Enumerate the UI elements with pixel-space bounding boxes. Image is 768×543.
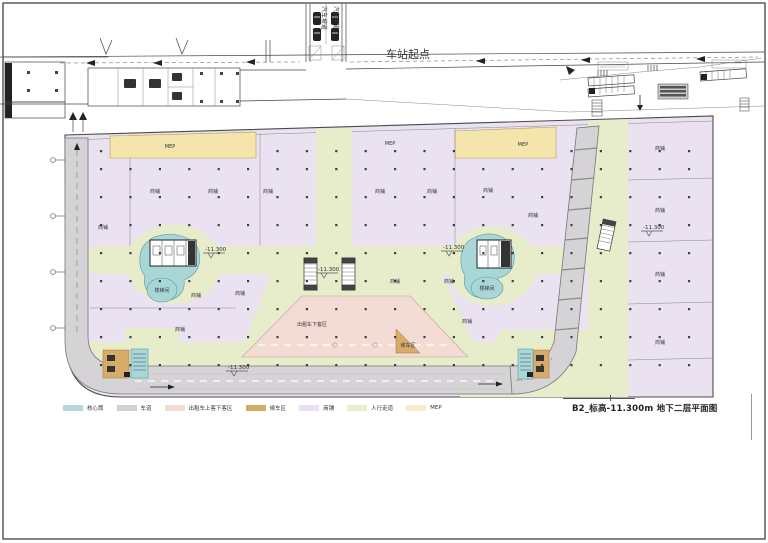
column-dot — [159, 280, 161, 282]
legend-swatch — [117, 405, 137, 411]
shop-label: 商铺 — [444, 278, 454, 285]
column-dot — [247, 308, 249, 310]
column-dot — [423, 224, 425, 226]
legend-item: 车道 — [117, 404, 152, 412]
column-dot — [247, 280, 249, 282]
column-dot — [247, 224, 249, 226]
column-dot — [365, 150, 367, 152]
station-escalator-cluster — [560, 58, 762, 116]
car-ramp: 汽车坡道 汽车坡道 — [306, 4, 346, 62]
column-dot — [600, 336, 602, 338]
column-dot — [335, 196, 337, 198]
mep-label: MEP — [518, 142, 529, 148]
column-dot — [629, 280, 631, 282]
column-dot — [512, 308, 514, 310]
column-dot — [365, 280, 367, 282]
column-dot — [629, 168, 631, 170]
column-dot — [276, 168, 278, 170]
column-dot — [335, 252, 337, 254]
escalator-icon — [588, 75, 634, 97]
column-dot — [276, 364, 278, 366]
column-dot — [570, 168, 572, 170]
column-dot — [394, 196, 396, 198]
column-dot — [453, 252, 455, 254]
column-dot — [570, 280, 572, 282]
column-dot — [659, 168, 661, 170]
column-dot — [453, 336, 455, 338]
column-dot — [482, 196, 484, 198]
column-dot — [453, 308, 455, 310]
column-dot — [570, 364, 572, 366]
column-dot — [306, 196, 308, 198]
column-dot — [306, 364, 308, 366]
column-dot — [365, 336, 367, 338]
column-dot — [629, 150, 631, 152]
column-dot — [159, 196, 161, 198]
column-dot — [512, 364, 514, 366]
column-dot — [129, 364, 131, 366]
legend-swatch — [299, 405, 319, 411]
column-dot — [188, 168, 190, 170]
column-dot — [512, 196, 514, 198]
station-start-label: 车站起点 — [386, 47, 430, 61]
column-dot — [541, 336, 543, 338]
column-dot — [600, 150, 602, 152]
column-dot — [365, 224, 367, 226]
column-dot — [335, 168, 337, 170]
column-dot — [159, 336, 161, 338]
column-dot — [188, 308, 190, 310]
shop-label: 商铺 — [175, 326, 185, 333]
shop-label: 商铺 — [427, 188, 437, 195]
column-dot — [482, 336, 484, 338]
column-dot — [659, 364, 661, 366]
title-rule — [563, 398, 635, 399]
break-line — [100, 38, 112, 54]
column-dot — [129, 196, 131, 198]
column-dot — [129, 280, 131, 282]
shop-label: 商铺 — [150, 188, 160, 195]
legend-item: 出租车上客下客区 — [165, 404, 233, 412]
column-dot — [306, 168, 308, 170]
shop-label: 商铺 — [655, 145, 665, 152]
legend: 核心筒车道出租车上客下客区候车区商铺人行走道MEP — [63, 404, 442, 412]
column-dot — [129, 252, 131, 254]
column-dot — [600, 224, 602, 226]
column-dot — [159, 252, 161, 254]
legend-item: 人行走道 — [347, 404, 393, 412]
shop-label: 商铺 — [191, 292, 201, 299]
column-dot — [218, 336, 220, 338]
column-dot — [423, 336, 425, 338]
column-dot — [247, 168, 249, 170]
column-dot — [629, 224, 631, 226]
legend-item: 候车区 — [246, 404, 287, 412]
column-dot — [188, 252, 190, 254]
column-dot — [688, 150, 690, 152]
column-dot — [394, 252, 396, 254]
column-dot — [335, 224, 337, 226]
column-dot — [218, 308, 220, 310]
column-dot — [188, 196, 190, 198]
legend-swatch — [347, 405, 367, 411]
stair-block — [518, 349, 533, 379]
svg-text:-11.300: -11.300 — [318, 267, 340, 273]
column-dot — [659, 280, 661, 282]
drawing-title: B2_标高-11.300m 地下二层平面图 — [572, 402, 718, 414]
column-dot — [100, 168, 102, 170]
column-dot — [570, 252, 572, 254]
column-dot — [688, 364, 690, 366]
shop-label: 商铺 — [390, 278, 400, 285]
column-dot — [629, 336, 631, 338]
column-dot — [600, 364, 602, 366]
ramp-label: 汽车坡道 — [320, 6, 328, 30]
column-dot — [423, 168, 425, 170]
column-dot — [629, 308, 631, 310]
legend-label: 出租车上客下客区 — [189, 404, 233, 412]
column-dot — [600, 280, 602, 282]
column-dot — [688, 224, 690, 226]
column-dot — [453, 224, 455, 226]
column-dot — [159, 364, 161, 366]
column-dot — [100, 150, 102, 152]
column-dot — [394, 364, 396, 366]
column-dot — [600, 196, 602, 198]
elevator-bank-icon — [477, 240, 511, 268]
column-dot — [541, 252, 543, 254]
column-dot — [482, 252, 484, 254]
ramp-label: 汽车坡道 — [332, 6, 340, 30]
border-rule — [751, 394, 752, 440]
service-building — [88, 68, 240, 106]
column-dot — [453, 364, 455, 366]
column-dot — [247, 252, 249, 254]
column-dot — [365, 168, 367, 170]
column-dot — [159, 224, 161, 226]
column-dot — [659, 308, 661, 310]
shop-label: 商铺 — [208, 188, 218, 195]
column-dot — [365, 364, 367, 366]
column-dot — [276, 252, 278, 254]
column-dot — [276, 224, 278, 226]
svg-text:-11.300: -11.300 — [205, 247, 227, 253]
column-dot — [688, 252, 690, 254]
column-dot — [688, 308, 690, 310]
column-dot — [218, 168, 220, 170]
column-dot — [276, 280, 278, 282]
column-dot — [570, 150, 572, 152]
column-dot — [600, 252, 602, 254]
column-dot — [129, 308, 131, 310]
mep-label: MEP — [385, 141, 396, 147]
column-dot — [629, 196, 631, 198]
column-dot — [335, 150, 337, 152]
svg-text:-11.300: -11.300 — [443, 245, 465, 251]
column-dot — [688, 280, 690, 282]
column-dot — [600, 168, 602, 170]
column-dot — [218, 196, 220, 198]
column-dot — [512, 252, 514, 254]
column-dot — [188, 224, 190, 226]
column-dot — [482, 308, 484, 310]
column-dot — [306, 336, 308, 338]
column-dot — [100, 336, 102, 338]
legend-label: 车道 — [141, 404, 152, 412]
waiting-area-label: 候车区 — [400, 342, 415, 349]
column-dot — [218, 280, 220, 282]
column-dot — [512, 224, 514, 226]
column-dot — [659, 196, 661, 198]
column-dot — [570, 308, 572, 310]
svg-text:-11.300: -11.300 — [643, 225, 665, 231]
legend-swatch — [63, 405, 83, 411]
column-dot — [218, 224, 220, 226]
column-dot — [306, 308, 308, 310]
column-dot — [453, 150, 455, 152]
column-dot — [570, 196, 572, 198]
column-dot — [394, 336, 396, 338]
column-dot — [100, 280, 102, 282]
column-dot — [335, 364, 337, 366]
column-dot — [100, 308, 102, 310]
column-dot — [394, 150, 396, 152]
shop-label: 商铺 — [462, 318, 472, 325]
column-dot — [688, 336, 690, 338]
floor-plan-drawing: 汽车坡道 汽车坡道 车站起点 — [0, 0, 768, 543]
column-dot — [100, 196, 102, 198]
column-dot — [247, 336, 249, 338]
shop-label: 商铺 — [483, 187, 493, 194]
column-dot — [335, 308, 337, 310]
shop-label: 商铺 — [528, 212, 538, 219]
column-dot — [218, 364, 220, 366]
column-dot — [512, 168, 514, 170]
column-dot — [159, 308, 161, 310]
stair-icon — [740, 98, 749, 111]
column-dot — [100, 364, 102, 366]
column-dot — [541, 280, 543, 282]
column-dot — [247, 196, 249, 198]
legend-item: 核心筒 — [63, 404, 104, 412]
column-dot — [570, 224, 572, 226]
column-dot — [306, 224, 308, 226]
column-dot — [541, 364, 543, 366]
column-dot — [394, 168, 396, 170]
taxi-zone-label: 出租车下客区 — [297, 321, 327, 328]
column-dot — [188, 364, 190, 366]
column-dot — [482, 280, 484, 282]
column-dot — [100, 252, 102, 254]
shop-label: 商铺 — [235, 290, 245, 297]
column-dot — [541, 308, 543, 310]
column-dot — [129, 168, 131, 170]
legend-label: 人行走道 — [371, 404, 393, 412]
stair-label: 楼梯间 — [154, 287, 169, 294]
column-dot — [570, 336, 572, 338]
legend-label: 商铺 — [323, 404, 334, 412]
column-dot — [541, 224, 543, 226]
column-dot — [423, 196, 425, 198]
column-dot — [541, 196, 543, 198]
svg-text:-11.300: -11.300 — [228, 365, 250, 371]
legend-swatch — [246, 405, 266, 411]
column-dot — [423, 308, 425, 310]
stair-label: 楼梯间 — [479, 285, 494, 292]
break-line — [176, 38, 188, 54]
column-dot — [482, 224, 484, 226]
column-dot — [276, 196, 278, 198]
column-dot — [629, 364, 631, 366]
column-dot — [365, 252, 367, 254]
column-dot — [394, 308, 396, 310]
legend-label: 候车区 — [270, 404, 287, 412]
column-dot — [688, 196, 690, 198]
column-dot — [453, 168, 455, 170]
main-plan: 商铺商铺商铺商铺商铺商铺商铺商铺商铺商铺商铺商铺商铺商铺商铺商铺商铺商铺 MEP… — [51, 112, 714, 397]
column-dot — [306, 280, 308, 282]
column-dot — [512, 280, 514, 282]
column-dot — [423, 252, 425, 254]
site-context: 汽车坡道 汽车坡道 车站起点 — [0, 4, 764, 118]
legend-label: MEP — [430, 405, 442, 411]
column-dot — [276, 150, 278, 152]
column-dot — [423, 150, 425, 152]
shop-label: 商铺 — [98, 224, 108, 231]
shop-label: 商铺 — [263, 188, 273, 195]
legend-item: MEP — [406, 405, 442, 411]
column-dot — [659, 252, 661, 254]
column-dot — [188, 336, 190, 338]
axis-ticks — [51, 158, 66, 331]
legend-label: 核心筒 — [87, 404, 104, 412]
column-dot — [306, 252, 308, 254]
column-dot — [335, 280, 337, 282]
drawing-sheet: 汽车坡道 汽车坡道 车站起点 — [0, 0, 768, 543]
legend-item: 商铺 — [299, 404, 334, 412]
shop-label: 商铺 — [655, 271, 665, 278]
column-dot — [482, 364, 484, 366]
column-dot — [541, 168, 543, 170]
column-dot — [423, 364, 425, 366]
column-dot — [629, 252, 631, 254]
column-dot — [276, 336, 278, 338]
column-dot — [276, 308, 278, 310]
legend-swatch — [406, 405, 426, 411]
column-dot — [453, 196, 455, 198]
column-dot — [394, 224, 396, 226]
column-dot — [129, 336, 131, 338]
title-rule-tick — [610, 395, 611, 401]
column-dot — [423, 280, 425, 282]
column-dot — [365, 308, 367, 310]
stair-icon — [592, 100, 602, 116]
column-dot — [482, 168, 484, 170]
column-dot — [688, 168, 690, 170]
escalator-tag — [598, 62, 628, 70]
shop-label: 商铺 — [655, 339, 665, 346]
column-dot — [600, 308, 602, 310]
shop-label: 商铺 — [655, 207, 665, 214]
column-dot — [129, 224, 131, 226]
column-dot — [659, 336, 661, 338]
left-platform — [0, 57, 108, 118]
lift-block-icon — [658, 84, 688, 99]
column-dot — [512, 336, 514, 338]
column-dot — [188, 280, 190, 282]
shop-label: 商铺 — [375, 188, 385, 195]
column-dot — [335, 336, 337, 338]
column-dot — [365, 196, 367, 198]
legend-swatch — [165, 405, 185, 411]
car-lift-icon — [124, 73, 182, 100]
column-dot — [306, 150, 308, 152]
column-dot — [159, 168, 161, 170]
mep-label: MEP — [165, 144, 176, 150]
